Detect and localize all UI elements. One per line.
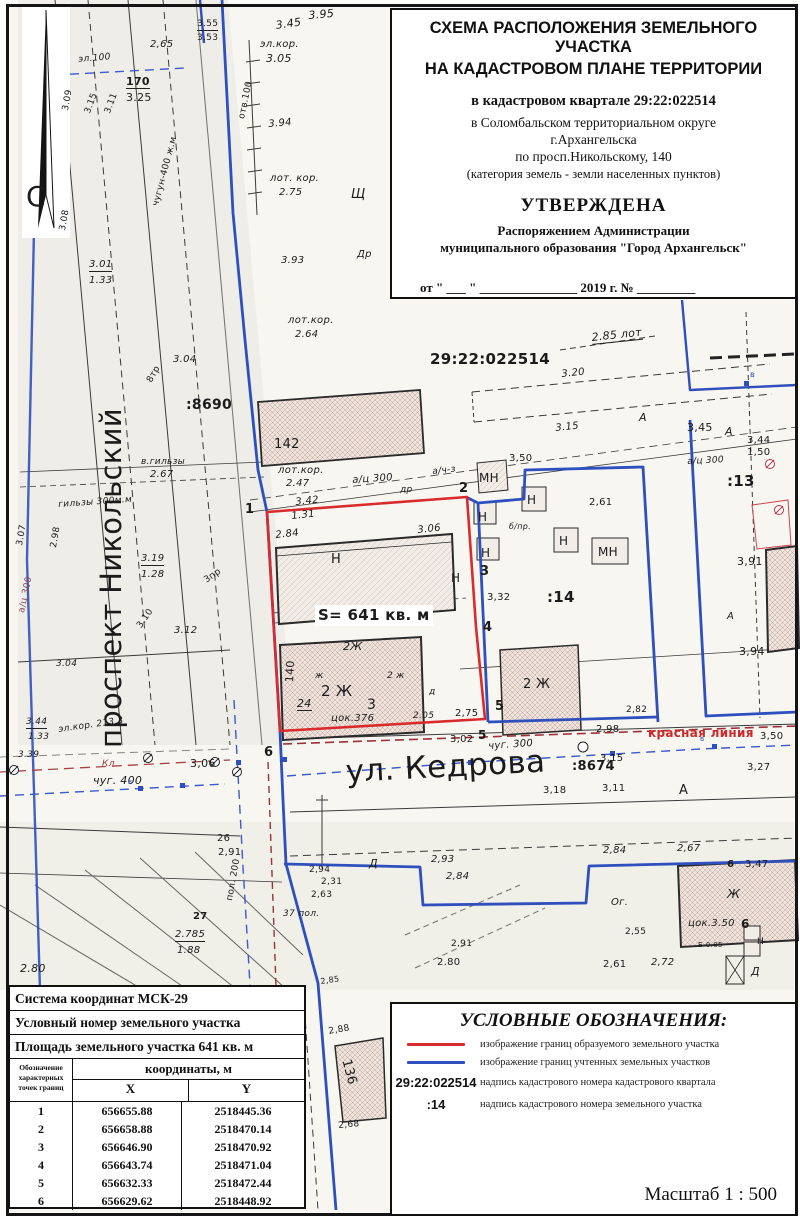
map-label: 2,55 — [625, 928, 646, 937]
map-label: 2,94 — [309, 866, 330, 875]
approval-date-line: от " ___ " _______________ 2019 г. № ___… — [392, 280, 795, 296]
map-label: 6 — [264, 746, 273, 759]
table-cell: 4 — [10, 1156, 73, 1174]
legend-sample — [392, 1061, 480, 1064]
map-label: чугун-400 ж.м — [152, 136, 179, 207]
table-row: 4656643.742518471.04 — [10, 1156, 304, 1174]
legend-title: УСЛОВНЫЕ ОБОЗНАЧЕНИЯ: — [392, 1010, 795, 1032]
map-label: ж — [315, 672, 323, 681]
map-label: 140 — [284, 660, 296, 682]
cadastral-quarter-line: в кадастровом квартале 29:22:022514 — [392, 93, 795, 110]
coordinate-table: Система координат МСК-29 Условный номер … — [8, 985, 306, 1209]
legend-sample: 29:22:022514 — [392, 1075, 480, 1090]
map-label: 3.45 — [275, 16, 302, 30]
table-row: 3656646.902518470.92 — [10, 1138, 304, 1156]
map-label: 3.39 — [18, 751, 39, 760]
legend-block: УСЛОВНЫЕ ОБОЗНАЧЕНИЯ: изображение границ… — [390, 1002, 797, 1216]
map-label: чуг. 400 — [93, 775, 142, 786]
map-label: 2Ж — [343, 641, 362, 652]
map-label: 5 — [495, 700, 504, 713]
map-label: 3 — [367, 698, 376, 712]
map-label: Н — [757, 938, 764, 947]
map-label: 1 — [245, 503, 254, 516]
map-label: 3,94 — [739, 646, 765, 657]
map-label: 3.11 — [104, 92, 120, 115]
map-label: б/пр. — [509, 523, 531, 531]
map-label: 3.93 — [281, 256, 304, 266]
title-block: СХЕМА РАСПОЛОЖЕНИЯ ЗЕМЕЛЬНОГО УЧАСТКА НА… — [390, 8, 797, 299]
map-label: 2.85 лот — [591, 327, 643, 345]
legend-item-text: изображение границ образуемого земельног… — [480, 1039, 719, 1050]
map-label: 3.55 — [197, 20, 218, 31]
map-label: 2.67 — [150, 470, 173, 480]
map-label: 2,91 — [218, 848, 241, 858]
map-label: 2,65 — [150, 40, 173, 50]
map-label: 27 — [193, 912, 208, 922]
map-label: 4 — [483, 621, 492, 634]
map-label: лот.кор. — [278, 466, 324, 476]
points-column-header-line: Обозначение — [10, 1063, 72, 1073]
map-label: 2,61 — [603, 960, 626, 970]
map-label: 3.04 — [56, 660, 77, 669]
cadastral-scheme-page: Спроспект Никольскийул. Кедрова3.953.45э… — [0, 0, 800, 1216]
conditional-number-row: Условный номер земельного участка — [10, 1011, 304, 1035]
map-label: 3.08 — [59, 209, 72, 231]
map-label: :14 — [547, 590, 575, 605]
map-label: 3.94 — [268, 118, 292, 130]
map-label: лот.кор. — [288, 316, 334, 326]
map-label: 3.42 — [295, 496, 319, 508]
map-label: 2 Ж — [523, 678, 550, 691]
map-label: Н — [559, 535, 568, 547]
map-label: Н — [331, 553, 341, 566]
map-label: 2,72 — [651, 958, 674, 968]
table-cell: 656646.90 — [73, 1138, 182, 1156]
address-line: по просп.Никольскому, 140 — [392, 149, 795, 165]
map-label: в — [750, 371, 755, 379]
map-label: Н — [451, 572, 460, 584]
map-label: 1.33 — [89, 276, 112, 286]
map-label: отв.100 — [238, 81, 255, 120]
map-label: 2.75 — [279, 188, 302, 198]
map-label: 2,75 — [455, 709, 478, 719]
map-label: красная линия — [648, 727, 754, 739]
map-label: 142 — [274, 438, 300, 451]
map-label: 2,68 — [338, 1120, 360, 1131]
map-label: :13 — [727, 474, 755, 489]
map-label: 2,91 — [451, 940, 472, 949]
map-label: 2.98 — [50, 526, 63, 548]
points-column-header-line: характерных — [10, 1073, 72, 1083]
map-label: ул. Кедрова — [345, 747, 546, 788]
table-cell: 2518470.92 — [182, 1138, 304, 1156]
map-label: д — [429, 688, 436, 697]
map-label: Щ — [351, 188, 366, 201]
table-cell: 656658.88 — [73, 1120, 182, 1138]
table-row: 6656629.622518448.92 — [10, 1192, 304, 1210]
map-label: 3.53 — [197, 34, 218, 43]
map-label: 5 — [478, 729, 487, 741]
map-label: 2,93 — [431, 855, 454, 865]
map-label: 3,11 — [602, 784, 625, 794]
red-boundary-line-sample — [407, 1043, 465, 1046]
legend-sample — [392, 1043, 480, 1046]
map-label: 2,88 — [328, 1024, 350, 1037]
coordinates-header: координаты, м — [73, 1059, 304, 1080]
map-label: Б-0.05 — [698, 942, 723, 949]
map-label: 1,50 — [747, 448, 770, 458]
map-label: 1.88 — [177, 946, 200, 956]
map-label: 2.84 — [275, 529, 299, 541]
legend-item: изображение границ учтенных земельных уч… — [392, 1057, 795, 1068]
map-label: 3.44 — [26, 718, 47, 729]
district-line2: г.Архангельска — [392, 132, 795, 148]
table-row: 1656655.882518445.36 — [10, 1102, 304, 1120]
map-label: Д — [751, 966, 760, 977]
map-label: в — [128, 779, 132, 786]
map-label: 3.25 — [126, 92, 152, 103]
map-label: А — [725, 426, 733, 437]
map-label: 3.15 — [84, 92, 100, 115]
map-label: 2.05 — [413, 712, 434, 721]
map-label: 1.33 — [28, 733, 49, 742]
coordinate-rows: 1656655.882518445.362656658.882518470.14… — [10, 1102, 304, 1210]
map-label: 3.95 — [308, 8, 335, 21]
map-label: 6 — [741, 918, 750, 930]
map-label: Др — [357, 250, 372, 260]
map-label: 3,91 — [737, 556, 763, 567]
land-category-line: (категория земель - земли населенных пун… — [392, 167, 795, 182]
map-label: 3.05 — [266, 53, 292, 64]
map-label: 3,18 — [543, 786, 566, 796]
table-cell: 3 — [10, 1138, 73, 1156]
map-label: Н — [481, 547, 490, 559]
map-label: 3 — [480, 565, 489, 578]
map-label: а/ц 300 — [687, 456, 724, 467]
map-label: 3.20 — [561, 368, 585, 380]
map-label: 3,27 — [747, 763, 770, 773]
table-cell: 656643.74 — [73, 1156, 182, 1174]
map-label: 2.64 — [295, 330, 318, 340]
legend-item-text: изображение границ учтенных земельных уч… — [480, 1057, 710, 1068]
map-label: 29:22:022514 — [430, 352, 550, 367]
map-label: 2.80 — [437, 958, 460, 968]
map-label: 3пр — [203, 568, 223, 586]
scheme-heading-line1: СХЕМА РАСПОЛОЖЕНИЯ ЗЕМЕЛЬНОГО УЧАСТКА — [392, 19, 795, 57]
table-cell: 6 — [10, 1192, 73, 1210]
legend-item-text: надпись кадастрового номера земельного у… — [480, 1099, 702, 1110]
map-label: проспект Никольский — [97, 408, 126, 748]
table-cell: 2518472.44 — [182, 1174, 304, 1192]
approved-by-line2: муниципального образования "Город Арханг… — [392, 240, 795, 256]
map-label: 2,31 — [321, 878, 342, 887]
map-label: 8тр — [146, 365, 163, 385]
legend-item: :14надпись кадастрового номера земельног… — [392, 1097, 795, 1112]
map-label: 2,61 — [589, 498, 612, 508]
map-label: 2,67 — [677, 844, 700, 854]
map-label: Кл — [102, 760, 115, 769]
y-column-header: Y — [189, 1080, 304, 1101]
map-label: 2,98 — [596, 725, 619, 735]
map-label: 3.06 — [417, 524, 441, 536]
map-label: эл.кор. — [260, 40, 299, 50]
map-label: С — [26, 183, 46, 211]
table-cell: 2518448.92 — [182, 1192, 304, 1210]
map-label: 2 — [459, 482, 468, 495]
map-label: 26 — [217, 834, 230, 844]
map-label: Ог. — [611, 898, 628, 908]
map-label: 3,15 — [600, 754, 623, 764]
legend-items: изображение границ образуемого земельног… — [392, 1039, 795, 1112]
approved-by-line1: Распоряжением Администрации — [392, 223, 795, 239]
points-column-header-line: точек границ — [10, 1083, 72, 1093]
map-label: 24 — [297, 698, 312, 711]
map-label: А — [639, 412, 647, 423]
map-label: 3.07 — [16, 524, 29, 546]
map-label: 37 пол. — [283, 910, 319, 919]
table-cell: 656632.33 — [73, 1174, 182, 1192]
blue-boundary-line-sample — [407, 1061, 465, 1064]
map-label: 1.31 — [291, 510, 315, 522]
map-label: 3.01 — [89, 260, 112, 272]
map-label: 2,63 — [311, 891, 332, 900]
map-label: в.гильзы — [141, 458, 185, 467]
map-label: а/ц 300 — [18, 576, 34, 614]
table-header: Обозначениехарактерныхточек границ коорд… — [10, 1059, 304, 1102]
map-label: цок.376 — [331, 714, 374, 724]
legend-item: изображение границ образуемого земельног… — [392, 1039, 795, 1050]
points-column-header: Обозначениехарактерныхточек границ — [10, 1059, 73, 1101]
map-label: Д — [369, 858, 378, 869]
map-label: цок.3.50 — [688, 919, 735, 929]
table-cell: 656629.62 — [73, 1192, 182, 1210]
map-label: 2,82 — [626, 706, 647, 715]
map-label: 2,84 — [446, 872, 469, 882]
map-label: эл.100 — [78, 53, 111, 65]
map-label: а/ч-з — [432, 466, 456, 477]
map-label: 3,50 — [760, 732, 783, 742]
map-label: 2 ж — [387, 672, 405, 681]
map-label: 3,47 — [745, 860, 768, 870]
map-label: 3,44 — [747, 436, 770, 446]
map-label: 3.09 — [62, 89, 75, 111]
x-column-header: X — [73, 1080, 189, 1101]
map-label: 2.785 — [175, 930, 205, 942]
map-label: 6 — [727, 860, 734, 870]
map-label: лот. кор. — [270, 174, 319, 184]
scale-note: Масштаб 1 : 500 — [644, 1184, 777, 1206]
plot-area-row: Площадь земельного участка 641 кв. м — [10, 1035, 304, 1059]
map-label: 3,45 — [687, 422, 713, 433]
map-label: А — [727, 612, 734, 622]
table-cell: 2518471.04 — [182, 1156, 304, 1174]
map-label: 3.12 — [174, 626, 197, 636]
map-label: 3.19 — [141, 554, 164, 566]
table-cell: 656655.88 — [73, 1102, 182, 1120]
table-cell: 1 — [10, 1102, 73, 1120]
map-label: 3.15 — [555, 422, 579, 434]
map-label: Н — [527, 494, 536, 506]
table-cell: 2518445.36 — [182, 1102, 304, 1120]
map-label: S= 641 кв. м — [318, 608, 430, 623]
map-label: 3,02 — [450, 735, 473, 745]
district-line1: в Соломбальском территориальном округе — [392, 115, 795, 131]
map-label: МН — [479, 472, 499, 484]
map-label: 2 Ж — [321, 684, 352, 699]
map-label: :8690 — [186, 398, 232, 412]
map-label: 170 — [126, 76, 150, 89]
table-row: 5656632.332518472.44 — [10, 1174, 304, 1192]
table-cell: 5 — [10, 1174, 73, 1192]
scheme-heading-line2: НА КАДАСТРОВОМ ПЛАНЕ ТЕРРИТОРИИ — [392, 60, 795, 79]
map-label: МН — [598, 546, 618, 558]
map-label: пол. 200 — [226, 858, 242, 901]
legend-sample: :14 — [392, 1097, 480, 1112]
map-label: а/ц 300 — [352, 473, 393, 486]
map-label: 136 — [339, 1058, 358, 1086]
map-label: 2.80 — [20, 963, 46, 974]
legend-item: 29:22:022514надпись кадастрового номера … — [392, 1075, 795, 1090]
map-label: др — [400, 486, 413, 495]
legend-item-text: надпись кадастрового номера кадастрового… — [480, 1077, 716, 1088]
map-label: 2.47 — [286, 479, 309, 489]
table-row: 2656658.882518470.14 — [10, 1120, 304, 1138]
map-label: 2,85 — [320, 975, 340, 986]
map-label: 3,50 — [509, 454, 532, 464]
map-label: 3.04 — [173, 355, 196, 365]
map-label: 3,06 — [190, 758, 216, 769]
table-cell: 2 — [10, 1120, 73, 1138]
map-label: А — [679, 784, 688, 797]
map-label: 3.10 — [136, 608, 156, 631]
table-cell: 2518470.14 — [182, 1120, 304, 1138]
map-label: Ж — [727, 888, 740, 900]
coordinate-system-row: Система координат МСК-29 — [10, 987, 304, 1011]
approved-heading: УТВЕРЖДЕНА — [392, 195, 795, 217]
map-label: 1.28 — [141, 570, 164, 580]
map-label: 2,84 — [603, 846, 626, 856]
map-label: Н — [478, 511, 487, 523]
map-label: 3,32 — [487, 593, 510, 603]
